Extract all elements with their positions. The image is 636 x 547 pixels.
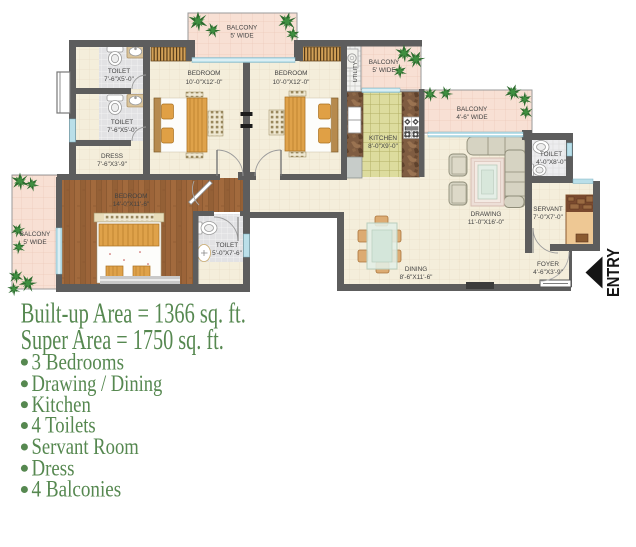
svg-text:BALCONY: BALCONY [20, 231, 51, 238]
svg-text:10'-0"X12'-0": 10'-0"X12'-0" [273, 79, 310, 86]
svg-text:4'-6"X3'-9": 4'-6"X3'-9" [533, 269, 563, 276]
svg-text:7'-6"X5'-0": 7'-6"X5'-0" [104, 76, 134, 83]
svg-text:7'-6"X3'-9": 7'-6"X3'-9" [97, 161, 127, 168]
svg-text:BALCONY: BALCONY [227, 25, 258, 32]
svg-text:5' WIDE: 5' WIDE [23, 239, 46, 246]
svg-text:TOILET: TOILET [111, 119, 133, 126]
svg-text:8'-6"X11'-6": 8'-6"X11'-6" [400, 274, 433, 281]
svg-text:TOILET: TOILET [216, 242, 238, 249]
svg-text:14'-0"X11'-6": 14'-0"X11'-6" [113, 201, 149, 208]
svg-text:BEDROOM: BEDROOM [114, 193, 147, 200]
svg-text:8'-0"X9'-0": 8'-0"X9'-0" [368, 143, 398, 150]
svg-text:5' WIDE: 5' WIDE [372, 67, 395, 74]
svg-text:KITCHEN: KITCHEN [369, 135, 397, 142]
svg-text:BEDROOM: BEDROOM [187, 70, 220, 77]
svg-text:DRESS: DRESS [101, 153, 123, 160]
svg-text:BEDROOM: BEDROOM [274, 70, 307, 77]
svg-text:7'-6"X5'-0": 7'-6"X5'-0" [107, 127, 137, 134]
svg-text:BALCONY: BALCONY [457, 106, 488, 113]
svg-text:DRAWING: DRAWING [471, 211, 502, 218]
svg-text:FOYER: FOYER [537, 261, 559, 268]
svg-text:11'-0"X16'-0": 11'-0"X16'-0" [468, 219, 504, 226]
svg-text:SERVANT: SERVANT [533, 206, 563, 213]
svg-text:TOILET: TOILET [540, 151, 562, 158]
svg-text:ENTRY: ENTRY [603, 248, 623, 297]
svg-text:4'-6" WIDE: 4'-6" WIDE [456, 114, 487, 121]
svg-text:4 Balconies: 4 Balconies [32, 477, 122, 502]
svg-text:5'-0"X7'-6": 5'-0"X7'-6" [212, 250, 242, 257]
svg-text:7'-0"X7'-0": 7'-0"X7'-0" [533, 214, 563, 221]
svg-text:UTILITY: UTILITY [353, 61, 359, 82]
svg-text:DINING: DINING [405, 266, 427, 273]
svg-text:TOILET: TOILET [108, 68, 130, 75]
svg-text:5' WIDE: 5' WIDE [230, 33, 253, 40]
svg-text:BALCONY: BALCONY [369, 59, 400, 66]
svg-text:4'-0"X8'-0": 4'-0"X8'-0" [536, 159, 566, 166]
svg-text:10'-0"X12'-0": 10'-0"X12'-0" [186, 79, 223, 86]
